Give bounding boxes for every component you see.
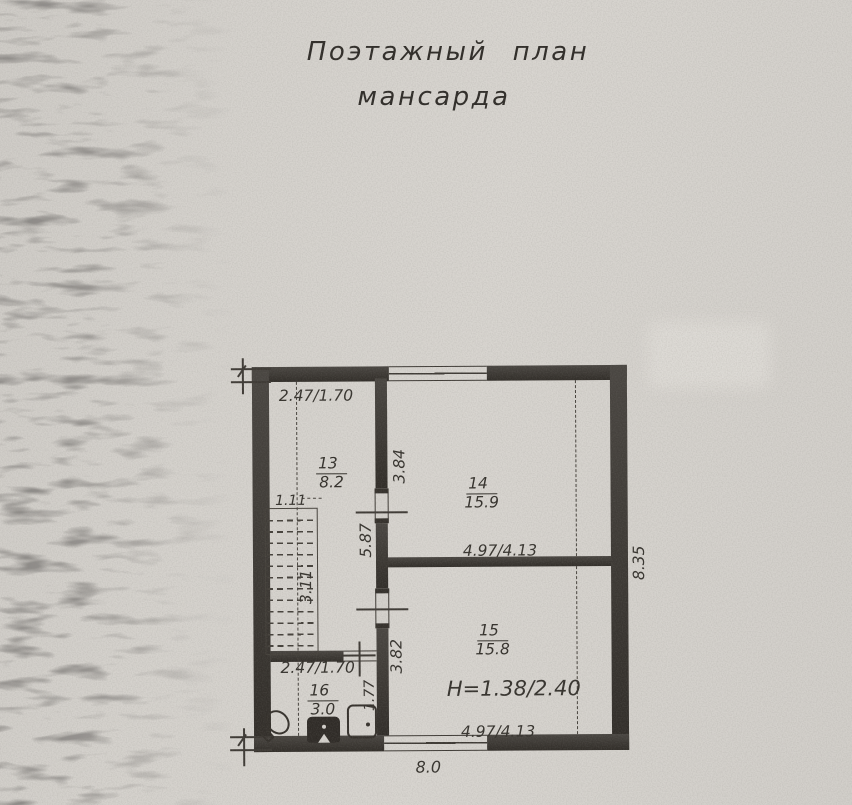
- room-16-label: 16 3.0: [307, 682, 338, 719]
- window-top: [389, 366, 487, 382]
- floor-plan: 2.47/1.70 3.84 4.97/4.13 5.87 1.11 3.11 …: [0, 0, 852, 805]
- wall-middle-upper: [375, 378, 388, 488]
- wall-top-right: [487, 365, 627, 381]
- room-15-label: 15 15.8: [475, 622, 510, 659]
- dim-tick-opening-upper: [356, 511, 408, 513]
- dim-tick-room16-v: [358, 641, 360, 676]
- dim-tick-topleft-v: [242, 358, 244, 394]
- dim-room13-width: 2.47/1.70: [279, 387, 353, 405]
- opening-hall-room14: [375, 488, 389, 523]
- dim-stairs-width: 1.11: [275, 493, 306, 509]
- dim-room15-width: 4.97/4.13: [461, 722, 535, 740]
- dim-tick-topleft-h2: [231, 381, 271, 383]
- room-number: 13: [316, 455, 347, 475]
- dim-room14-left: 3.84: [390, 449, 408, 484]
- room-number: 15: [477, 622, 508, 642]
- dim-room14-width: 4.97/4.13: [463, 541, 537, 559]
- dashed-ceiling-line-right-upper: [575, 380, 577, 556]
- dim-total-width-bottom: 8.0: [415, 757, 441, 776]
- room-area: 8.2: [319, 475, 344, 493]
- dim-room15-left: 3.82: [387, 639, 405, 674]
- dim-tick-opening-lower: [356, 608, 408, 610]
- sink-pedestal: [318, 734, 330, 743]
- wall-top-left: [252, 366, 389, 382]
- scanned-floor-plan-page: Поэтажный план мансарда: [0, 0, 852, 805]
- room-13-label: 13 8.2: [316, 455, 347, 492]
- room-14-label: 14 15.9: [464, 475, 499, 512]
- dim-tick-room16-h: [342, 654, 376, 656]
- room-area: 15.9: [464, 495, 499, 513]
- dim-room16-width: 2.47/1.70: [280, 659, 354, 677]
- wall-right: [610, 365, 629, 750]
- sink-icon: [307, 717, 340, 743]
- dim-hall-height: 5.87: [357, 523, 375, 558]
- dim-total-height-right: 8.35: [630, 545, 648, 580]
- dim-stairs-length: 3.11: [297, 570, 315, 605]
- dim-tick-bottomleft-h2: [230, 749, 272, 751]
- shower-tray-icon: [347, 704, 377, 738]
- dim-tick-topleft-h1: [231, 368, 271, 370]
- sink-drain-dot: [322, 725, 326, 729]
- shower-drain-dot: [366, 722, 370, 726]
- room-number: 14: [466, 475, 497, 495]
- ceiling-height-note: H=1.38/2.40: [447, 676, 581, 701]
- wall-middle-center: [376, 523, 388, 588]
- room-number: 16: [307, 682, 338, 702]
- room-area: 15.8: [475, 642, 510, 660]
- dashed-ceiling-line-right-lower: [576, 566, 578, 734]
